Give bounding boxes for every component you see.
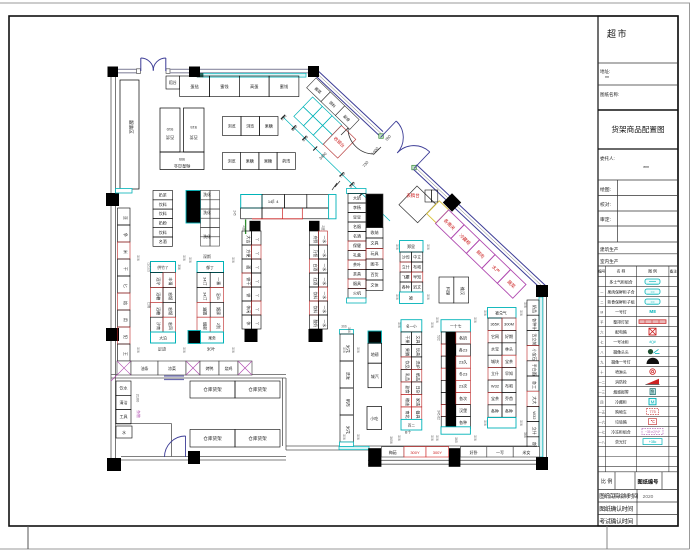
svg-text:名烟: 名烟 — [353, 223, 361, 229]
svg-text:名 称: 名 称 — [617, 269, 626, 274]
svg-text:洗发: 洗发 — [346, 372, 352, 380]
svg-text:高蛋: 高蛋 — [250, 83, 258, 90]
svg-text:饮料: 饮料 — [313, 306, 318, 314]
svg-text:图纸确认时间: 图纸确认时间 — [599, 505, 633, 513]
svg-text:荧光灯: 荧光灯 — [615, 439, 627, 444]
svg-text:~35 e2)*4*: ~35 e2)*4* — [645, 430, 661, 434]
svg-text:奶粉: 奶粉 — [159, 220, 167, 226]
svg-text:果糖: 果糖 — [264, 158, 272, 164]
svg-text:各23: 各23 — [459, 346, 468, 352]
svg-text:B个: B个 — [405, 430, 411, 435]
svg-text:立什: 立什 — [532, 427, 538, 435]
svg-text:休: 休 — [246, 321, 252, 325]
svg-text:名酒: 名酒 — [353, 233, 361, 239]
svg-text:洗化: 洗化 — [203, 210, 211, 215]
svg-text:飞覆: 飞覆 — [402, 273, 410, 279]
svg-text:布吧: 布吧 — [413, 263, 421, 269]
svg-text:306: 306 — [136, 255, 140, 261]
svg-text:维汉: 维汉 — [459, 287, 466, 296]
svg-text:喷淋头: 喷淋头 — [615, 369, 627, 374]
svg-text:M: M — [651, 399, 655, 404]
svg-text:地磅: 地磅 — [371, 351, 379, 357]
svg-text:粮油: 粮油 — [405, 398, 411, 406]
svg-text:白酒: 白酒 — [313, 264, 318, 272]
svg-text:2020: 2020 — [643, 494, 654, 500]
svg-text:沼G: 沼G — [216, 293, 222, 300]
svg-text:宏馏: 宏馏 — [168, 307, 174, 315]
svg-text:丫: 丫 — [255, 265, 260, 269]
svg-text:306: 306 — [342, 434, 346, 440]
svg-text:宝茶: 宝茶 — [491, 395, 499, 401]
svg-text:梅茹: 梅茹 — [389, 449, 397, 455]
svg-text:姻寐: 姻寐 — [216, 307, 222, 315]
svg-text:水: 水 — [122, 430, 126, 435]
svg-text:用: 用 — [123, 318, 128, 322]
svg-text:礼盒: 礼盒 — [353, 252, 361, 258]
svg-text:34汀: 34汀 — [203, 292, 209, 300]
svg-text:丫: 丫 — [255, 307, 260, 311]
svg-text:亘: 亘 — [123, 216, 128, 220]
svg-text:城块: 城块 — [491, 358, 499, 364]
svg-text:丫: 丫 — [255, 251, 260, 255]
svg-text:饮水: 饮水 — [120, 385, 128, 391]
svg-text:手白面: 手白面 — [532, 364, 538, 376]
svg-text:大吉: 大吉 — [246, 235, 252, 243]
svg-text:306: 306 — [182, 255, 186, 261]
svg-text:足迹: 足迹 — [158, 346, 167, 353]
svg-text:餐具: 餐具 — [416, 411, 422, 419]
svg-text:布吧: 布吧 — [505, 383, 513, 389]
svg-text:306: 306 — [356, 347, 360, 353]
svg-text:烟具: 烟具 — [353, 280, 361, 286]
svg-text:306: 306 — [182, 347, 186, 353]
svg-text:一七: 一七 — [599, 429, 606, 434]
svg-text:早知: 早知 — [505, 370, 513, 376]
svg-text:306: 306 — [435, 435, 439, 441]
svg-text:文具: 文具 — [416, 336, 422, 344]
svg-text:摄像头头: 摄像头头 — [613, 349, 629, 354]
svg-text:23久: 23久 — [459, 359, 467, 365]
svg-text:洗化: 洗化 — [203, 234, 211, 239]
svg-text:M: M — [600, 310, 603, 314]
svg-text:表稿台: 表稿台 — [406, 192, 420, 199]
svg-text:仓库货架: 仓库货架 — [203, 386, 222, 393]
svg-text:郁丁: 郁丁 — [206, 265, 214, 270]
svg-text:玩具: 玩具 — [416, 348, 422, 356]
svg-text:林头: 林头 — [505, 345, 513, 351]
svg-text:大泊: 大泊 — [159, 336, 167, 341]
svg-text:方便: 方便 — [246, 249, 252, 257]
svg-text:图纸底稿绘制时间: 图纸底稿绘制时间 — [599, 492, 638, 500]
svg-text:一号冰柜: 一号冰柜 — [613, 339, 629, 344]
svg-text:306: 306 — [356, 434, 360, 440]
svg-text:豆豆: 豆豆 — [353, 215, 361, 220]
svg-text:300Y: 300Y — [410, 450, 420, 455]
svg-text:仓库货架: 仓库货架 — [248, 386, 267, 393]
svg-text:各种: 各种 — [491, 407, 499, 413]
svg-text:一三: 一三 — [599, 390, 605, 394]
svg-text:345.62: 345.62 — [437, 410, 441, 420]
svg-text:茶具: 茶具 — [353, 271, 361, 277]
svg-text:306: 306 — [483, 420, 487, 426]
svg-text:中立: 中立 — [413, 253, 421, 259]
svg-text:浏览: 浏览 — [228, 158, 236, 164]
svg-text:米叶: 米叶 — [207, 346, 216, 353]
svg-text:备注: 备注 — [670, 269, 678, 274]
svg-text:饮料: 饮料 — [159, 201, 167, 207]
svg-text:宏馏: 宏馏 — [168, 292, 174, 300]
svg-text:家清: 家清 — [416, 398, 422, 406]
svg-text:早知: 早知 — [413, 273, 421, 279]
svg-text:2别: 2别 — [216, 323, 222, 329]
svg-text:365K: 365K — [490, 322, 500, 327]
svg-text:货架商品配置图: 货架商品配置图 — [611, 124, 664, 134]
svg-text:各种: 各种 — [402, 283, 410, 289]
svg-text:迟文: 迟文 — [413, 283, 421, 289]
svg-text:校对:: 校对: — [600, 201, 611, 208]
svg-text:冷冻柜组合: 冷冻柜组合 — [611, 429, 631, 434]
svg-text:建筑生产: 建筑生产 — [600, 246, 619, 253]
svg-text:一写: 一写 — [496, 450, 504, 455]
svg-text:各种: 各种 — [505, 407, 513, 413]
svg-text:℃: ℃ — [650, 420, 655, 424]
svg-text:好卧: 好卧 — [470, 449, 478, 455]
svg-text:910: 910 — [166, 127, 173, 132]
svg-text:比 例: 比 例 — [601, 478, 612, 485]
svg-text:图纸编号: 图纸编号 — [638, 478, 659, 486]
svg-text:消防栓: 消防栓 — [615, 379, 627, 384]
svg-text:室内生产: 室内生产 — [600, 258, 619, 265]
svg-text:沼泞: 沼泞 — [156, 277, 162, 285]
svg-text:仓库货架: 仓库货架 — [203, 435, 222, 442]
svg-text:烟感报警: 烟感报警 — [613, 389, 629, 394]
svg-text:购物车: 购物车 — [615, 409, 627, 414]
svg-text:一六: 一六 — [599, 419, 606, 424]
svg-text:306: 306 — [473, 435, 477, 441]
svg-text:四: 四 — [600, 400, 603, 404]
svg-text:地址:: 地址: — [600, 68, 610, 74]
svg-text:被: 被 — [409, 295, 413, 301]
svg-text:一水: 一水 — [322, 320, 327, 328]
svg-text:丰谓: 丰谓 — [168, 277, 174, 285]
svg-text:3656: 3656 — [389, 436, 393, 444]
svg-text:干: 干 — [123, 267, 128, 271]
svg-text:鱼: 鱼 — [651, 388, 655, 394]
svg-text:百货: 百货 — [371, 271, 379, 277]
svg-text:306: 306 — [519, 310, 523, 316]
svg-text:米女: 米女 — [522, 449, 530, 455]
svg-text:306: 306 — [342, 347, 346, 353]
svg-text:整排灯架: 整排灯架 — [613, 319, 629, 324]
svg-text:已而: 已而 — [147, 302, 151, 309]
svg-text:==: == — [651, 300, 655, 304]
svg-text:争: 争 — [123, 233, 129, 237]
svg-text:百货: 百货 — [190, 134, 198, 141]
svg-text:收纳: 收纳 — [371, 229, 379, 235]
svg-text:烤鸭: 烤鸭 — [206, 366, 214, 371]
svg-text:料理: 料理 — [444, 287, 451, 296]
svg-text:915: 915 — [190, 125, 197, 130]
svg-text:饮料: 饮料 — [159, 210, 167, 216]
svg-text:775: 775 — [649, 410, 655, 414]
svg-text:**: ** — [605, 76, 609, 82]
svg-text:300Y: 300Y — [433, 450, 443, 455]
svg-text:+38c: +38c — [649, 440, 657, 444]
svg-text:一五: 一五 — [599, 410, 606, 414]
svg-text:丫: 丫 — [255, 293, 260, 297]
svg-text:一寨: 一寨 — [216, 277, 222, 285]
svg-text:垃圾箱: 垃圾箱 — [615, 419, 627, 424]
svg-text:306: 306 — [136, 347, 140, 353]
svg-text:==: == — [651, 290, 655, 294]
svg-text:二: 二 — [600, 300, 603, 304]
svg-text:王: 王 — [123, 352, 128, 356]
svg-text:杂物: 杂物 — [136, 410, 141, 418]
svg-text:一号灯: 一号灯 — [615, 309, 627, 314]
svg-text:W32: W32 — [491, 384, 500, 389]
svg-text:日杂: 日杂 — [416, 386, 422, 394]
svg-text:委托人:: 委托人: — [600, 155, 615, 161]
svg-text:306: 306 — [523, 302, 527, 308]
svg-text:丫: 丫 — [255, 321, 260, 325]
svg-text:它网: 它网 — [491, 333, 499, 339]
svg-text:306: 306 — [231, 347, 235, 353]
svg-text:汐南: 汐南 — [156, 322, 162, 330]
svg-text:米: 米 — [123, 250, 129, 254]
svg-text:多士气柜组合: 多士气柜组合 — [609, 279, 632, 284]
svg-text:清洁: 清洁 — [120, 399, 128, 405]
svg-text:52C: 52C — [437, 335, 441, 342]
svg-text:城汽: 城汽 — [371, 373, 379, 379]
svg-text:乃恒: 乃恒 — [313, 250, 318, 258]
svg-text:366: 366 — [341, 325, 347, 329]
svg-text:浏览: 浏览 — [246, 123, 254, 129]
svg-text:306: 306 — [231, 257, 235, 263]
svg-text:图纸名称:: 图纸名称: — [600, 91, 619, 98]
svg-text:各工: 各工 — [532, 381, 538, 389]
svg-text:休闲: 休闲 — [246, 305, 252, 313]
svg-text:烟邮: 烟邮 — [203, 322, 209, 330]
svg-text:洗化: 洗化 — [203, 192, 211, 197]
svg-text:果糖: 果糖 — [265, 123, 273, 129]
svg-text:南北: 南北 — [405, 411, 411, 419]
svg-text:工具: 工具 — [120, 413, 128, 419]
svg-text:宏四: 宏四 — [168, 322, 174, 330]
svg-text:文体: 文体 — [371, 282, 379, 288]
svg-text:蜜饯: 蜜饯 — [220, 83, 228, 90]
svg-text:果肉保鲜柜子合: 果肉保鲜柜子合 — [607, 289, 634, 294]
svg-text:摄像一号灯: 摄像一号灯 — [611, 359, 631, 364]
svg-text:超市: 超市 — [607, 28, 628, 39]
svg-text:浏览: 浏览 — [228, 123, 236, 129]
svg-text:各种: 各种 — [459, 419, 467, 425]
svg-text:M8: M8 — [649, 309, 656, 314]
svg-text:大大: 大大 — [532, 396, 538, 404]
svg-text:366: 366 — [523, 432, 527, 438]
svg-text:各奶: 各奶 — [459, 334, 467, 340]
svg-text:编号: 编号 — [598, 269, 606, 274]
svg-text:干果: 干果 — [405, 336, 411, 344]
svg-text:玩具: 玩具 — [371, 250, 379, 256]
svg-text:小吃: 小吃 — [370, 415, 378, 421]
svg-text:23次: 23次 — [459, 383, 467, 389]
svg-text:饼: 饼 — [246, 293, 252, 297]
svg-text:凉菜: 凉菜 — [168, 366, 176, 371]
svg-text:烧鸡: 烧鸡 — [225, 366, 233, 371]
svg-text:一二: 一二 — [599, 380, 605, 384]
svg-text:涵姻: 涵姻 — [203, 307, 209, 315]
svg-text:905: 905 — [179, 157, 185, 161]
svg-text:汉堡: 汉堡 — [459, 407, 467, 413]
svg-text:深斯: 深斯 — [203, 253, 211, 259]
svg-text:各种什: 各种什 — [532, 318, 538, 330]
svg-text:一水: 一水 — [322, 250, 327, 258]
svg-text:306: 306 — [188, 257, 192, 263]
svg-text:熟食保鲜柜子组: 熟食保鲜柜子组 — [607, 299, 634, 304]
svg-text:冷藏柜: 冷藏柜 — [615, 399, 627, 404]
svg-text:一水: 一水 — [322, 264, 327, 272]
svg-text:34汀: 34汀 — [203, 277, 209, 285]
svg-text:稻谷: 稻谷 — [169, 80, 177, 85]
svg-text:306: 306 — [426, 244, 430, 250]
svg-text:红酒: 红酒 — [313, 278, 318, 286]
svg-text:蛋挞: 蛋挞 — [190, 83, 199, 90]
svg-text:一水: 一水 — [322, 278, 327, 286]
svg-text:帆布: 帆布 — [346, 399, 352, 407]
svg-text:饼干: 饼干 — [246, 277, 252, 285]
svg-text:306: 306 — [426, 294, 430, 300]
svg-text:2度: 2度 — [242, 225, 247, 231]
svg-text:306: 306 — [519, 420, 523, 426]
svg-text:油条: 油条 — [141, 366, 149, 371]
svg-text:蜜饯: 蜜饯 — [280, 83, 288, 90]
svg-text:饮料: 饮料 — [159, 229, 167, 235]
svg-text:306: 306 — [483, 310, 487, 316]
svg-text:一十七: 一十七 — [450, 324, 462, 329]
svg-text:奶茶: 奶茶 — [159, 192, 167, 198]
svg-text:百货: 百货 — [166, 134, 174, 141]
svg-text:纸品: 纸品 — [416, 373, 422, 381]
svg-text:考试确认时间: 考试确认时间 — [599, 517, 633, 525]
svg-text:药湾: 药湾 — [282, 158, 290, 164]
svg-text:306: 306 — [395, 244, 399, 250]
svg-text:水宝: 水宝 — [491, 345, 499, 351]
svg-text:306: 306 — [177, 264, 181, 270]
svg-text:奶品: 奶品 — [532, 305, 538, 313]
svg-text:306: 306 — [395, 294, 399, 300]
svg-text:14阝4: 14阝4 — [268, 198, 279, 204]
svg-text:306: 306 — [397, 435, 401, 441]
svg-text:百二: 百二 — [408, 423, 416, 428]
svg-text:文具: 文具 — [371, 240, 379, 246]
svg-text:一八: 一八 — [599, 440, 606, 444]
svg-text:火机: 火机 — [353, 290, 361, 296]
svg-text:300M: 300M — [504, 322, 514, 327]
svg-text:306: 306 — [473, 317, 477, 323]
svg-text:306: 306 — [435, 317, 439, 323]
svg-text:匕: 匕 — [123, 284, 129, 288]
svg-text:米花: 米花 — [346, 426, 352, 434]
svg-text:郑显: 郑显 — [407, 243, 415, 249]
svg-text:各次: 各次 — [459, 395, 467, 401]
svg-text:犯: 犯 — [123, 335, 129, 339]
svg-text:果糖: 果糖 — [246, 158, 254, 164]
svg-text:一水: 一水 — [322, 306, 327, 314]
svg-text:W32: W32 — [532, 411, 537, 420]
svg-text:梅青瓜业: 梅青瓜业 — [174, 163, 191, 170]
svg-text:绘图:: 绘图: — [600, 186, 611, 193]
svg-text:保健: 保健 — [353, 242, 361, 248]
svg-text:面: 面 — [246, 265, 251, 269]
svg-text:***: *** — [643, 166, 649, 172]
svg-text:乔首: 乔首 — [505, 395, 513, 401]
svg-text:仓库货架: 仓库货架 — [248, 435, 267, 442]
svg-text:一水: 一水 — [322, 236, 327, 244]
svg-text:被兑气: 被兑气 — [495, 311, 507, 316]
svg-text:果脯: 果脯 — [405, 348, 411, 356]
svg-text:丫: 丫 — [255, 279, 260, 283]
svg-text:舌立前: 舌立前 — [532, 333, 538, 345]
svg-text:审定:: 审定: — [600, 216, 611, 223]
svg-text:一水: 一水 — [322, 292, 327, 300]
svg-text:焙: 焙 — [123, 301, 129, 305]
svg-text:306: 306 — [397, 322, 401, 328]
svg-text:舟劈: 舟劈 — [313, 236, 318, 244]
svg-text:果务: 果务 — [208, 336, 216, 341]
svg-text:2度: 2度 — [321, 225, 326, 231]
svg-text:好期: 好期 — [505, 333, 513, 339]
svg-text:配电箱: 配电箱 — [615, 329, 627, 334]
svg-text:#()#: #()# — [649, 340, 655, 344]
svg-text:加加加: 加加加 — [147, 262, 152, 272]
svg-text:306: 306 — [430, 435, 434, 441]
svg-text:立什: 立什 — [402, 263, 410, 269]
svg-text:茶叶: 茶叶 — [353, 261, 361, 267]
svg-text:245: 245 — [233, 210, 237, 216]
svg-text:立什: 立什 — [491, 370, 499, 376]
svg-text:366: 366 — [347, 327, 351, 333]
svg-text:丫: 丫 — [255, 237, 260, 241]
svg-text:乳品: 乳品 — [405, 373, 411, 381]
svg-text:沼糖: 沼糖 — [156, 292, 162, 300]
svg-text:大奶: 大奶 — [353, 195, 361, 201]
svg-text:饮品: 饮品 — [405, 361, 411, 369]
svg-text:冬23: 冬23 — [459, 371, 468, 377]
svg-text:宝茶: 宝茶 — [505, 358, 513, 364]
svg-text:供竹丫: 供竹丫 — [157, 265, 169, 270]
svg-text:服装区: 服装区 — [128, 120, 135, 134]
svg-text:图 例: 图 例 — [648, 269, 657, 274]
svg-text:名一小: 名一小 — [406, 324, 417, 329]
svg-text:沼糖: 沼糖 — [156, 307, 162, 315]
svg-text:李杨: 李杨 — [353, 204, 361, 210]
svg-text:沙司: 沙司 — [402, 254, 410, 259]
svg-text:小宝石: 小宝石 — [532, 349, 538, 361]
svg-text:饮料: 饮料 — [313, 292, 318, 300]
svg-text:图书: 图书 — [371, 261, 379, 267]
svg-text:副食: 副食 — [405, 386, 411, 394]
svg-text:365: 365 — [454, 437, 458, 443]
svg-text:306: 306 — [430, 322, 434, 328]
svg-text:名酒: 名酒 — [159, 238, 167, 244]
svg-text:酸奶: 酸奶 — [313, 320, 318, 328]
svg-text:2100: 2100 — [136, 394, 140, 402]
svg-text:洗护: 洗护 — [416, 361, 422, 369]
